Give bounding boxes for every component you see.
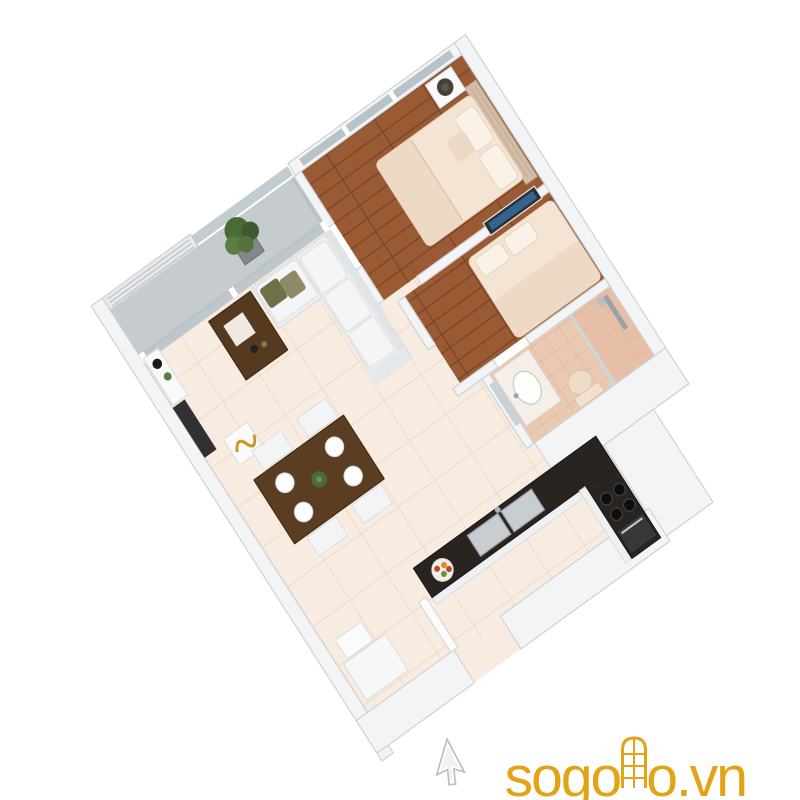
watermark-text-suffix: o.vn (646, 749, 746, 800)
arrow-cursor (435, 739, 472, 788)
floorplan-3d-render (0, 0, 800, 800)
door-icon-svg (619, 734, 649, 790)
watermark-text-prefix: sogo (505, 749, 621, 800)
door-panes (624, 739, 644, 788)
watermark-logo: sogo o.vn (505, 734, 746, 800)
door-icon (619, 734, 649, 800)
floorplan-page: { "watermark": { "prefix": "sogo", "suff… (0, 0, 800, 800)
